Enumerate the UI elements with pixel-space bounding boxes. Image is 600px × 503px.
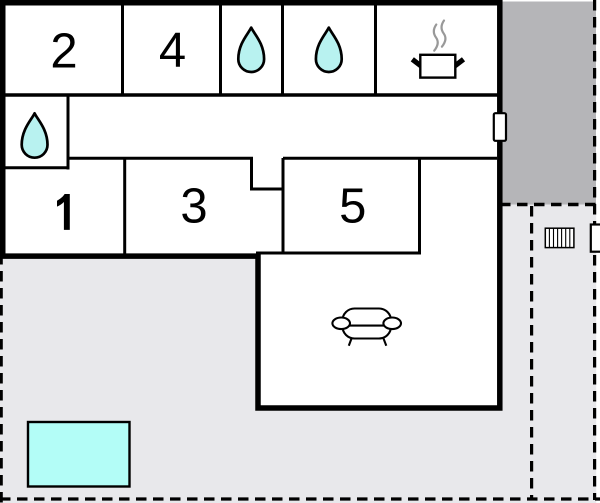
svg-text:3: 3 (180, 180, 207, 234)
svg-text:5: 5 (339, 180, 366, 234)
svg-text:2: 2 (50, 25, 77, 79)
svg-text:4: 4 (159, 24, 186, 78)
